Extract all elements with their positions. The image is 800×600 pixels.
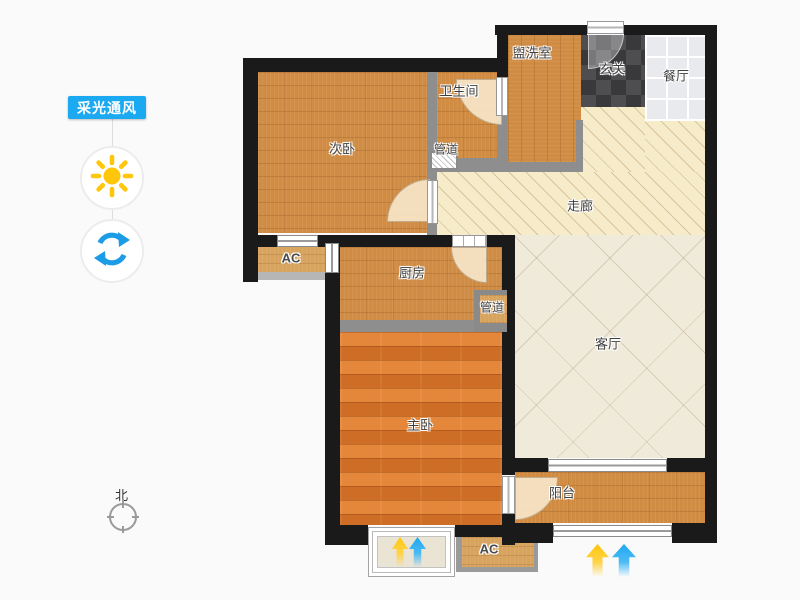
label-master: 主卧	[407, 415, 433, 434]
label-ac-bottom: AC	[480, 542, 499, 557]
window-balcony	[553, 525, 672, 537]
lighting-ventilation-button[interactable]: 采光通风	[68, 96, 146, 119]
wall	[495, 25, 587, 35]
label-kitchen: 厨房	[399, 263, 425, 282]
daylight-arrow	[586, 544, 609, 577]
label-living: 客厅	[595, 334, 621, 353]
wall	[672, 523, 717, 543]
wall	[340, 235, 452, 247]
label-entry: 玄关	[599, 59, 625, 78]
door-bathroom	[496, 77, 508, 116]
wall	[243, 58, 497, 72]
window-bedroom2	[277, 235, 318, 247]
wall	[243, 235, 278, 247]
door-balcony	[502, 476, 515, 514]
wall	[515, 523, 553, 543]
wall	[325, 235, 340, 545]
label-ac-mid: AC	[282, 251, 301, 266]
airflow-arrow	[612, 544, 636, 577]
door-bedroom2	[427, 180, 438, 224]
label-duct-top: 管道	[434, 141, 458, 158]
room-corridor	[645, 121, 705, 172]
wall	[243, 58, 258, 282]
compass-icon	[105, 499, 141, 540]
bay-window-sill	[377, 536, 446, 568]
window-ac-mid	[325, 243, 339, 273]
wall	[497, 25, 508, 77]
door-entrance	[587, 21, 624, 34]
wall	[503, 458, 548, 472]
door-kitchen-sliding	[452, 235, 487, 247]
label-washroom: 盥洗室	[512, 43, 551, 62]
label-bathroom: 卫生间	[439, 81, 478, 100]
label-duct-kitchen: 管道	[480, 299, 504, 316]
connector-line	[112, 119, 113, 146]
wall	[502, 235, 515, 475]
wall	[667, 458, 705, 472]
rotate-tool-button[interactable]	[80, 219, 144, 283]
wall	[455, 525, 515, 537]
wall-shadow	[258, 272, 327, 280]
daylight-tool-button[interactable]	[80, 146, 144, 210]
room-corridor	[581, 107, 645, 172]
window-living-balcony	[548, 459, 667, 472]
label-balcony: 阳台	[549, 483, 575, 502]
sun-icon	[89, 153, 135, 204]
label-corridor: 走廊	[567, 196, 593, 215]
wall	[576, 120, 583, 162]
wall	[427, 223, 437, 235]
wall	[624, 25, 717, 35]
label-dining: 餐厅	[663, 66, 689, 85]
wall	[497, 162, 583, 172]
wall	[325, 525, 368, 545]
label-bedroom2: 次卧	[329, 139, 355, 158]
rotate-icon	[92, 229, 132, 274]
wall	[705, 25, 717, 543]
